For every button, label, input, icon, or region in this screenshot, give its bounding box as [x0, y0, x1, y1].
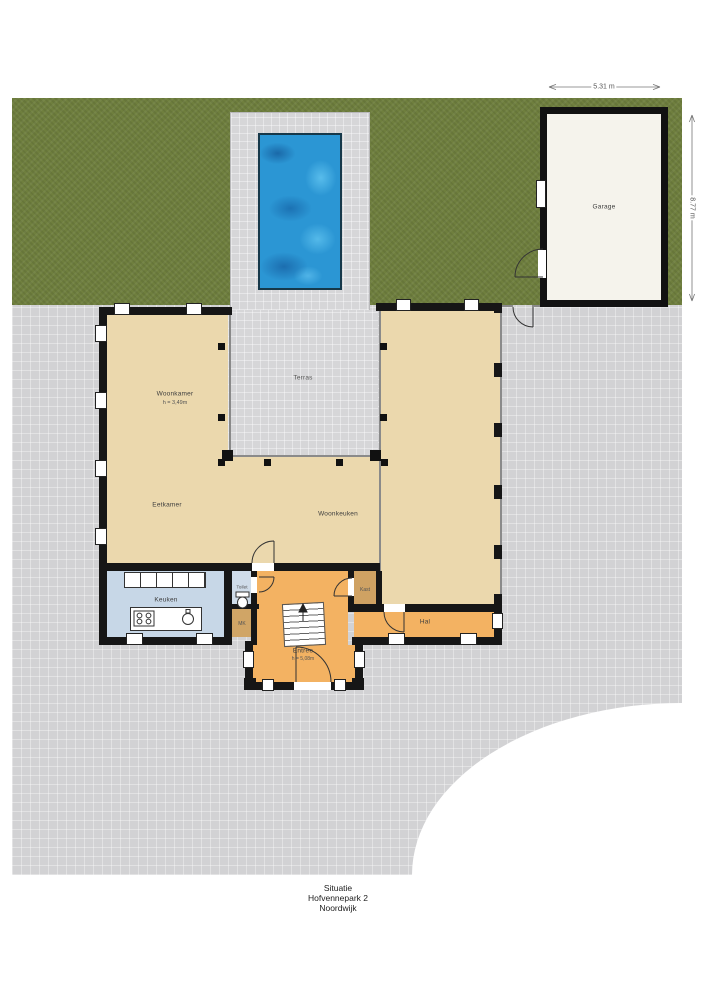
glass-terras-left	[229, 312, 231, 452]
window	[262, 679, 274, 691]
window	[396, 299, 411, 311]
door-opening	[294, 682, 331, 690]
swimming-pool	[258, 133, 342, 290]
room-label-kast: Kast	[360, 587, 370, 593]
wall-pier	[494, 303, 502, 313]
room-label-woonkamer: Woonkamer	[157, 391, 194, 398]
column	[264, 459, 271, 466]
room-label-entree: Entree	[293, 648, 313, 655]
corner-post	[222, 450, 233, 461]
room-height-woonkamer: h = 3,49m	[163, 400, 188, 406]
room-label-keuken: Keuken	[154, 597, 177, 604]
room-label-toilet: Toilet	[236, 586, 247, 591]
window	[114, 303, 130, 315]
window	[186, 303, 202, 315]
window	[354, 651, 365, 668]
glass-terras-bottom	[229, 455, 375, 457]
garage-depth-dimension: 8.77 m	[689, 195, 696, 220]
caption-title: Situatie	[238, 883, 438, 893]
floor-woonkamer	[107, 315, 228, 563]
window	[196, 633, 213, 645]
fence-line	[532, 305, 540, 307]
window	[95, 325, 107, 342]
column	[218, 343, 225, 350]
door-opening	[384, 604, 405, 612]
window	[388, 633, 405, 645]
column	[336, 459, 343, 466]
room-label-mk: MK	[238, 621, 246, 627]
door-opening	[252, 563, 274, 571]
wall-pier	[494, 423, 502, 437]
wall-segment	[352, 637, 502, 645]
room-height-entree: h = 5,08m	[292, 656, 314, 662]
caption-address: Hofvennepark 2	[238, 893, 438, 903]
wall-pier	[494, 485, 502, 499]
window	[243, 651, 254, 668]
room-label-terras: Terras	[293, 375, 312, 382]
floor-plan: Woonkamer h = 3,49m Terras Eetkamer Woon…	[0, 0, 707, 1000]
kitchen-counter	[124, 572, 206, 588]
window	[95, 460, 107, 477]
column	[218, 414, 225, 421]
garage-width-dimension: 5.31 m	[591, 84, 616, 91]
column	[380, 343, 387, 350]
room-label-woonkeuken: Woonkeuken	[318, 511, 358, 518]
floor-right-wing	[380, 311, 500, 604]
wall-segment	[376, 303, 502, 311]
window	[492, 613, 503, 629]
wall-segment	[99, 563, 380, 571]
glass-right-wing-right	[500, 313, 502, 605]
kitchen-island	[130, 607, 202, 631]
door-opening	[348, 578, 354, 596]
floor-terras	[228, 310, 378, 457]
caption-city: Noordwijk	[238, 903, 438, 913]
wall-pier	[494, 545, 502, 559]
column	[381, 459, 388, 466]
window	[334, 679, 346, 691]
room-label-garage: Garage	[593, 204, 616, 211]
wall-pier	[494, 594, 502, 606]
garage-door-opening	[538, 250, 546, 278]
staircase	[282, 602, 326, 647]
fence-line	[502, 305, 513, 307]
wall-pier	[352, 678, 364, 690]
window	[460, 633, 477, 645]
door-opening	[251, 577, 257, 593]
wall-segment	[348, 604, 502, 612]
wall-pier	[494, 363, 502, 377]
column	[380, 414, 387, 421]
window	[95, 528, 107, 545]
room-label-hal: Hal	[420, 619, 430, 626]
window	[95, 392, 107, 409]
plan-caption: Situatie Hofvennepark 2 Noordwijk	[238, 883, 438, 913]
corner-post	[370, 450, 381, 461]
garage-window	[536, 180, 546, 208]
wall-segment	[376, 571, 382, 608]
wall-segment	[224, 563, 232, 645]
wall-pier	[244, 678, 256, 690]
room-label-eetkamer: Eetkamer	[152, 502, 181, 509]
window	[126, 633, 143, 645]
window	[464, 299, 479, 311]
